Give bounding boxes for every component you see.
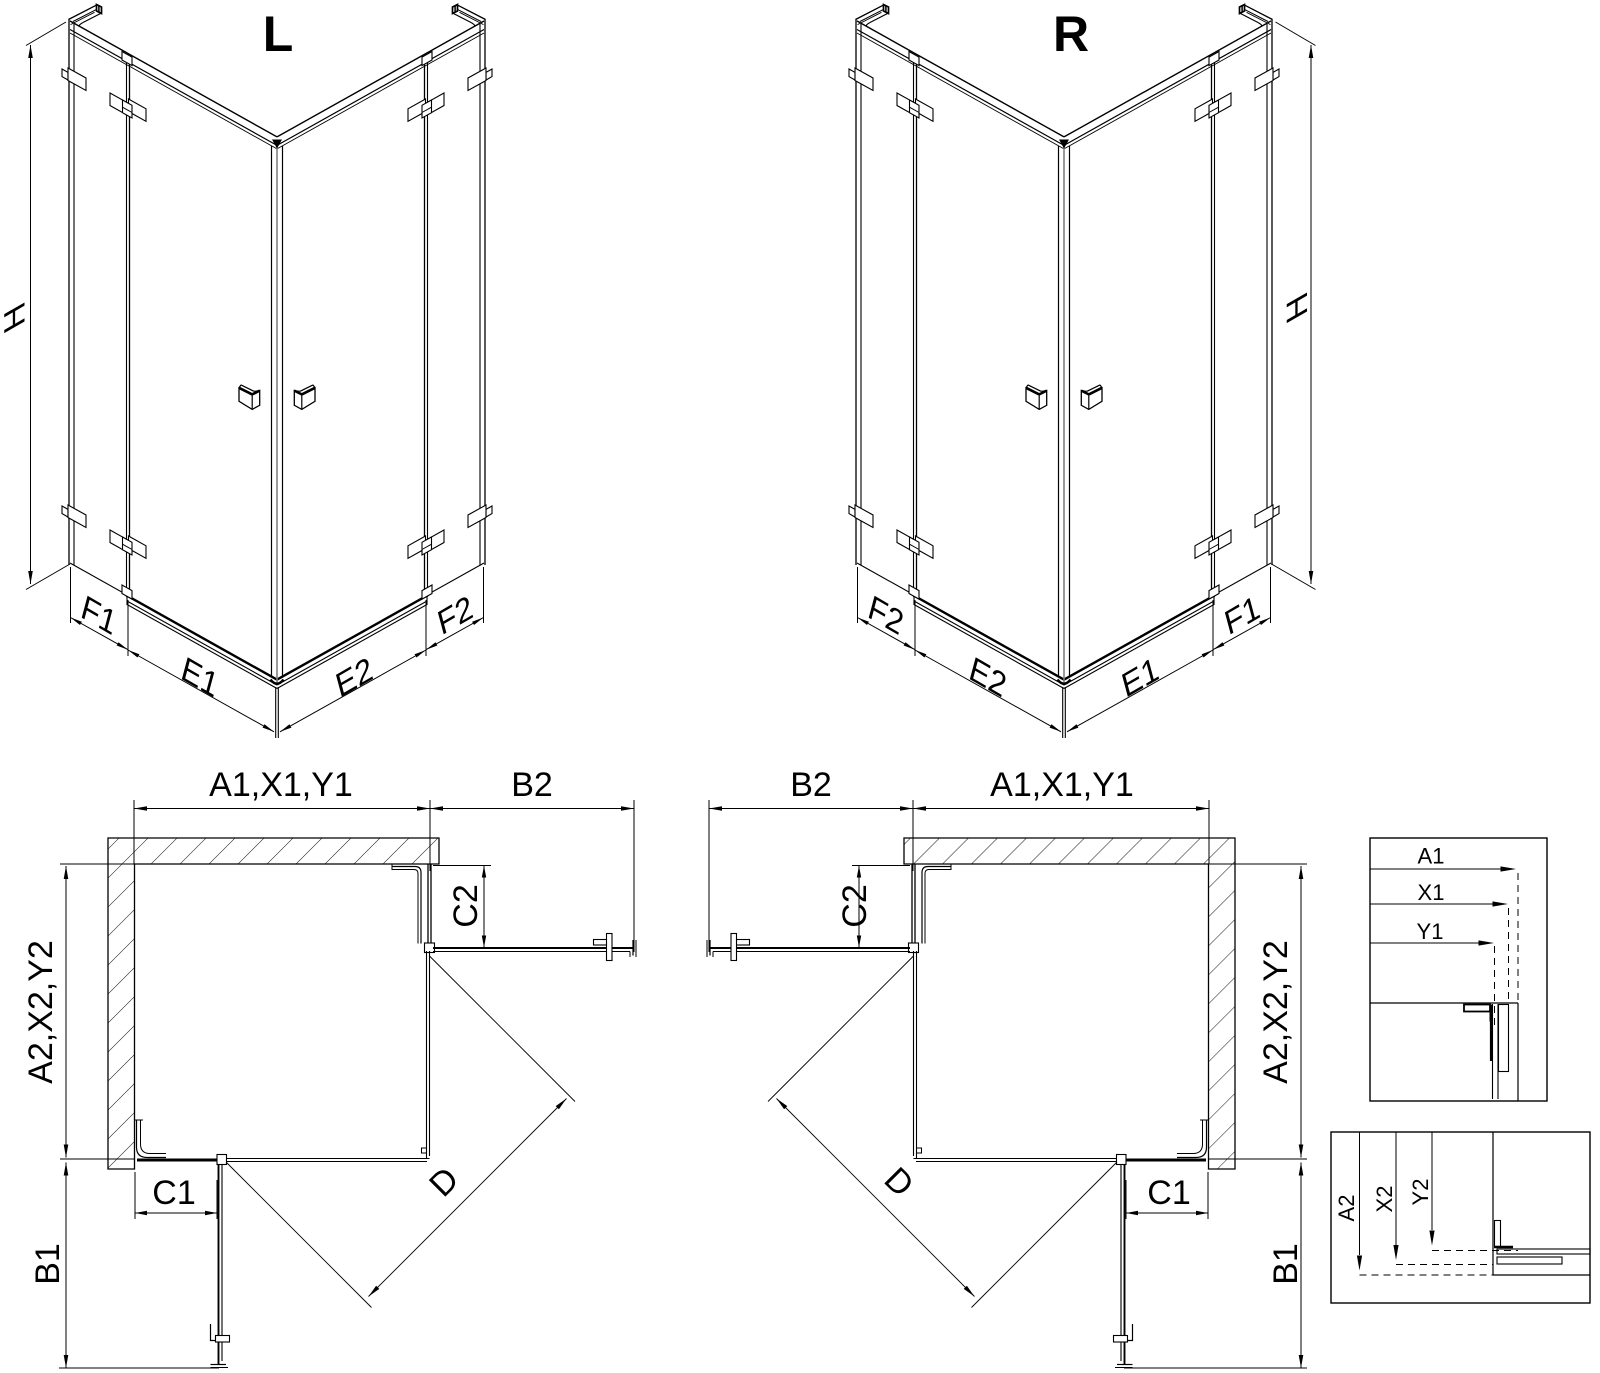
svg-text:A1,X1,Y1: A1,X1,Y1 bbox=[209, 766, 353, 804]
svg-text:C2: C2 bbox=[836, 884, 874, 927]
svg-text:X2: X2 bbox=[1372, 1186, 1397, 1213]
svg-text:B2: B2 bbox=[511, 766, 553, 804]
svg-text:C2: C2 bbox=[447, 884, 485, 927]
svg-text:B1: B1 bbox=[1267, 1243, 1305, 1285]
svg-text:B1: B1 bbox=[29, 1243, 67, 1285]
svg-text:C1: C1 bbox=[152, 1174, 195, 1212]
svg-text:X1: X1 bbox=[1418, 880, 1445, 905]
svg-text:A2,X2,Y2: A2,X2,Y2 bbox=[22, 940, 60, 1084]
svg-text:Y2: Y2 bbox=[1408, 1179, 1433, 1206]
svg-text:A2,X2,Y2: A2,X2,Y2 bbox=[1257, 940, 1295, 1084]
svg-text:A2: A2 bbox=[1334, 1195, 1359, 1222]
svg-text:C1: C1 bbox=[1147, 1174, 1190, 1212]
svg-text:B2: B2 bbox=[790, 766, 832, 804]
svg-text:L: L bbox=[263, 6, 294, 62]
svg-text:A1,X1,Y1: A1,X1,Y1 bbox=[990, 766, 1134, 804]
svg-text:A1: A1 bbox=[1418, 844, 1445, 869]
svg-text:R: R bbox=[1053, 6, 1089, 62]
svg-text:Y1: Y1 bbox=[1417, 919, 1444, 944]
